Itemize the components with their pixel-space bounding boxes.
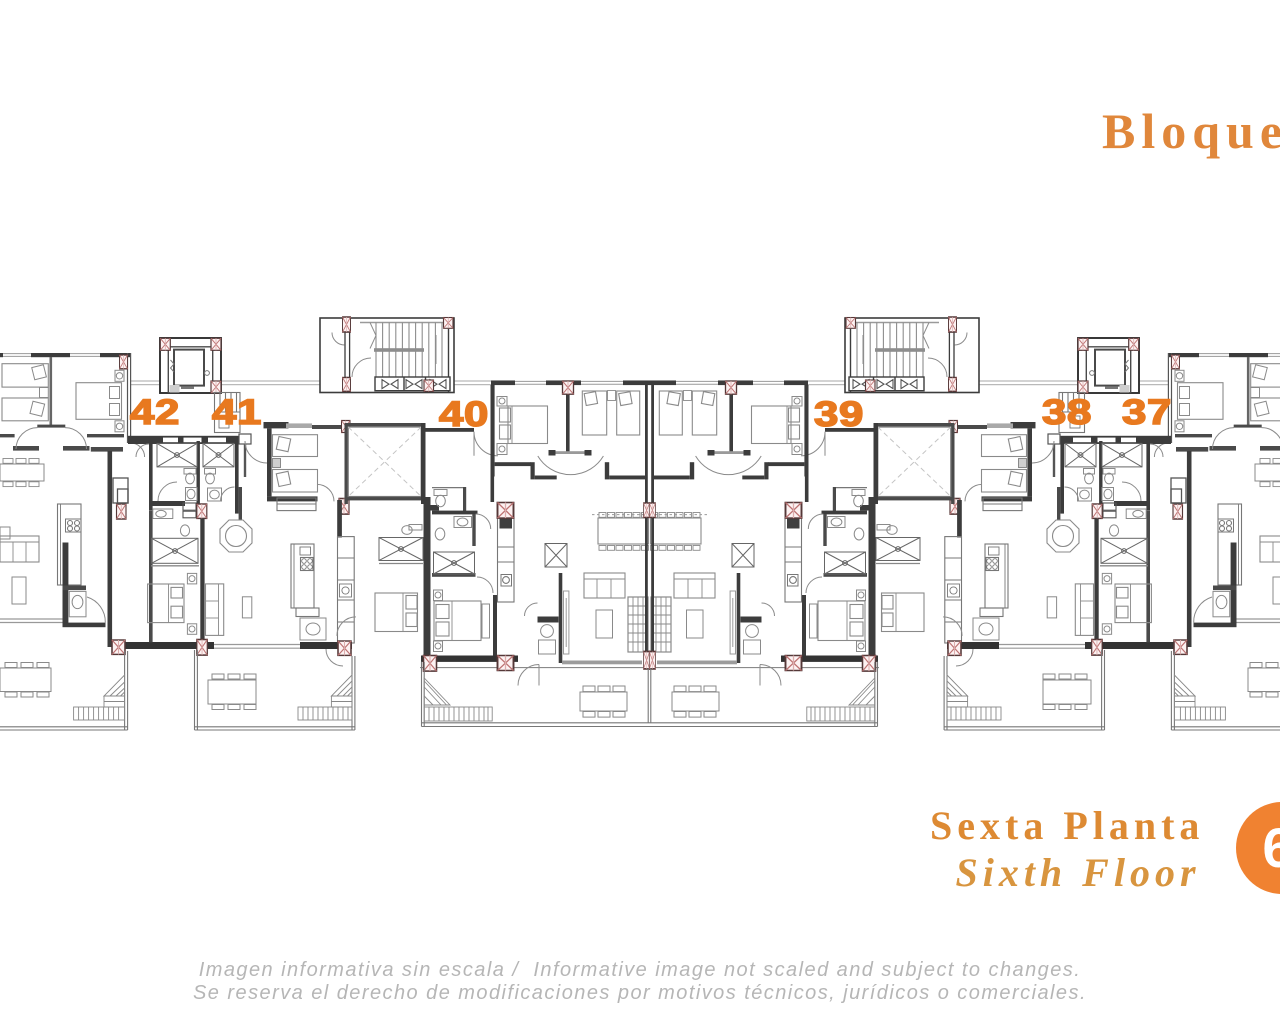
svg-text:6: 6 <box>1262 816 1280 879</box>
